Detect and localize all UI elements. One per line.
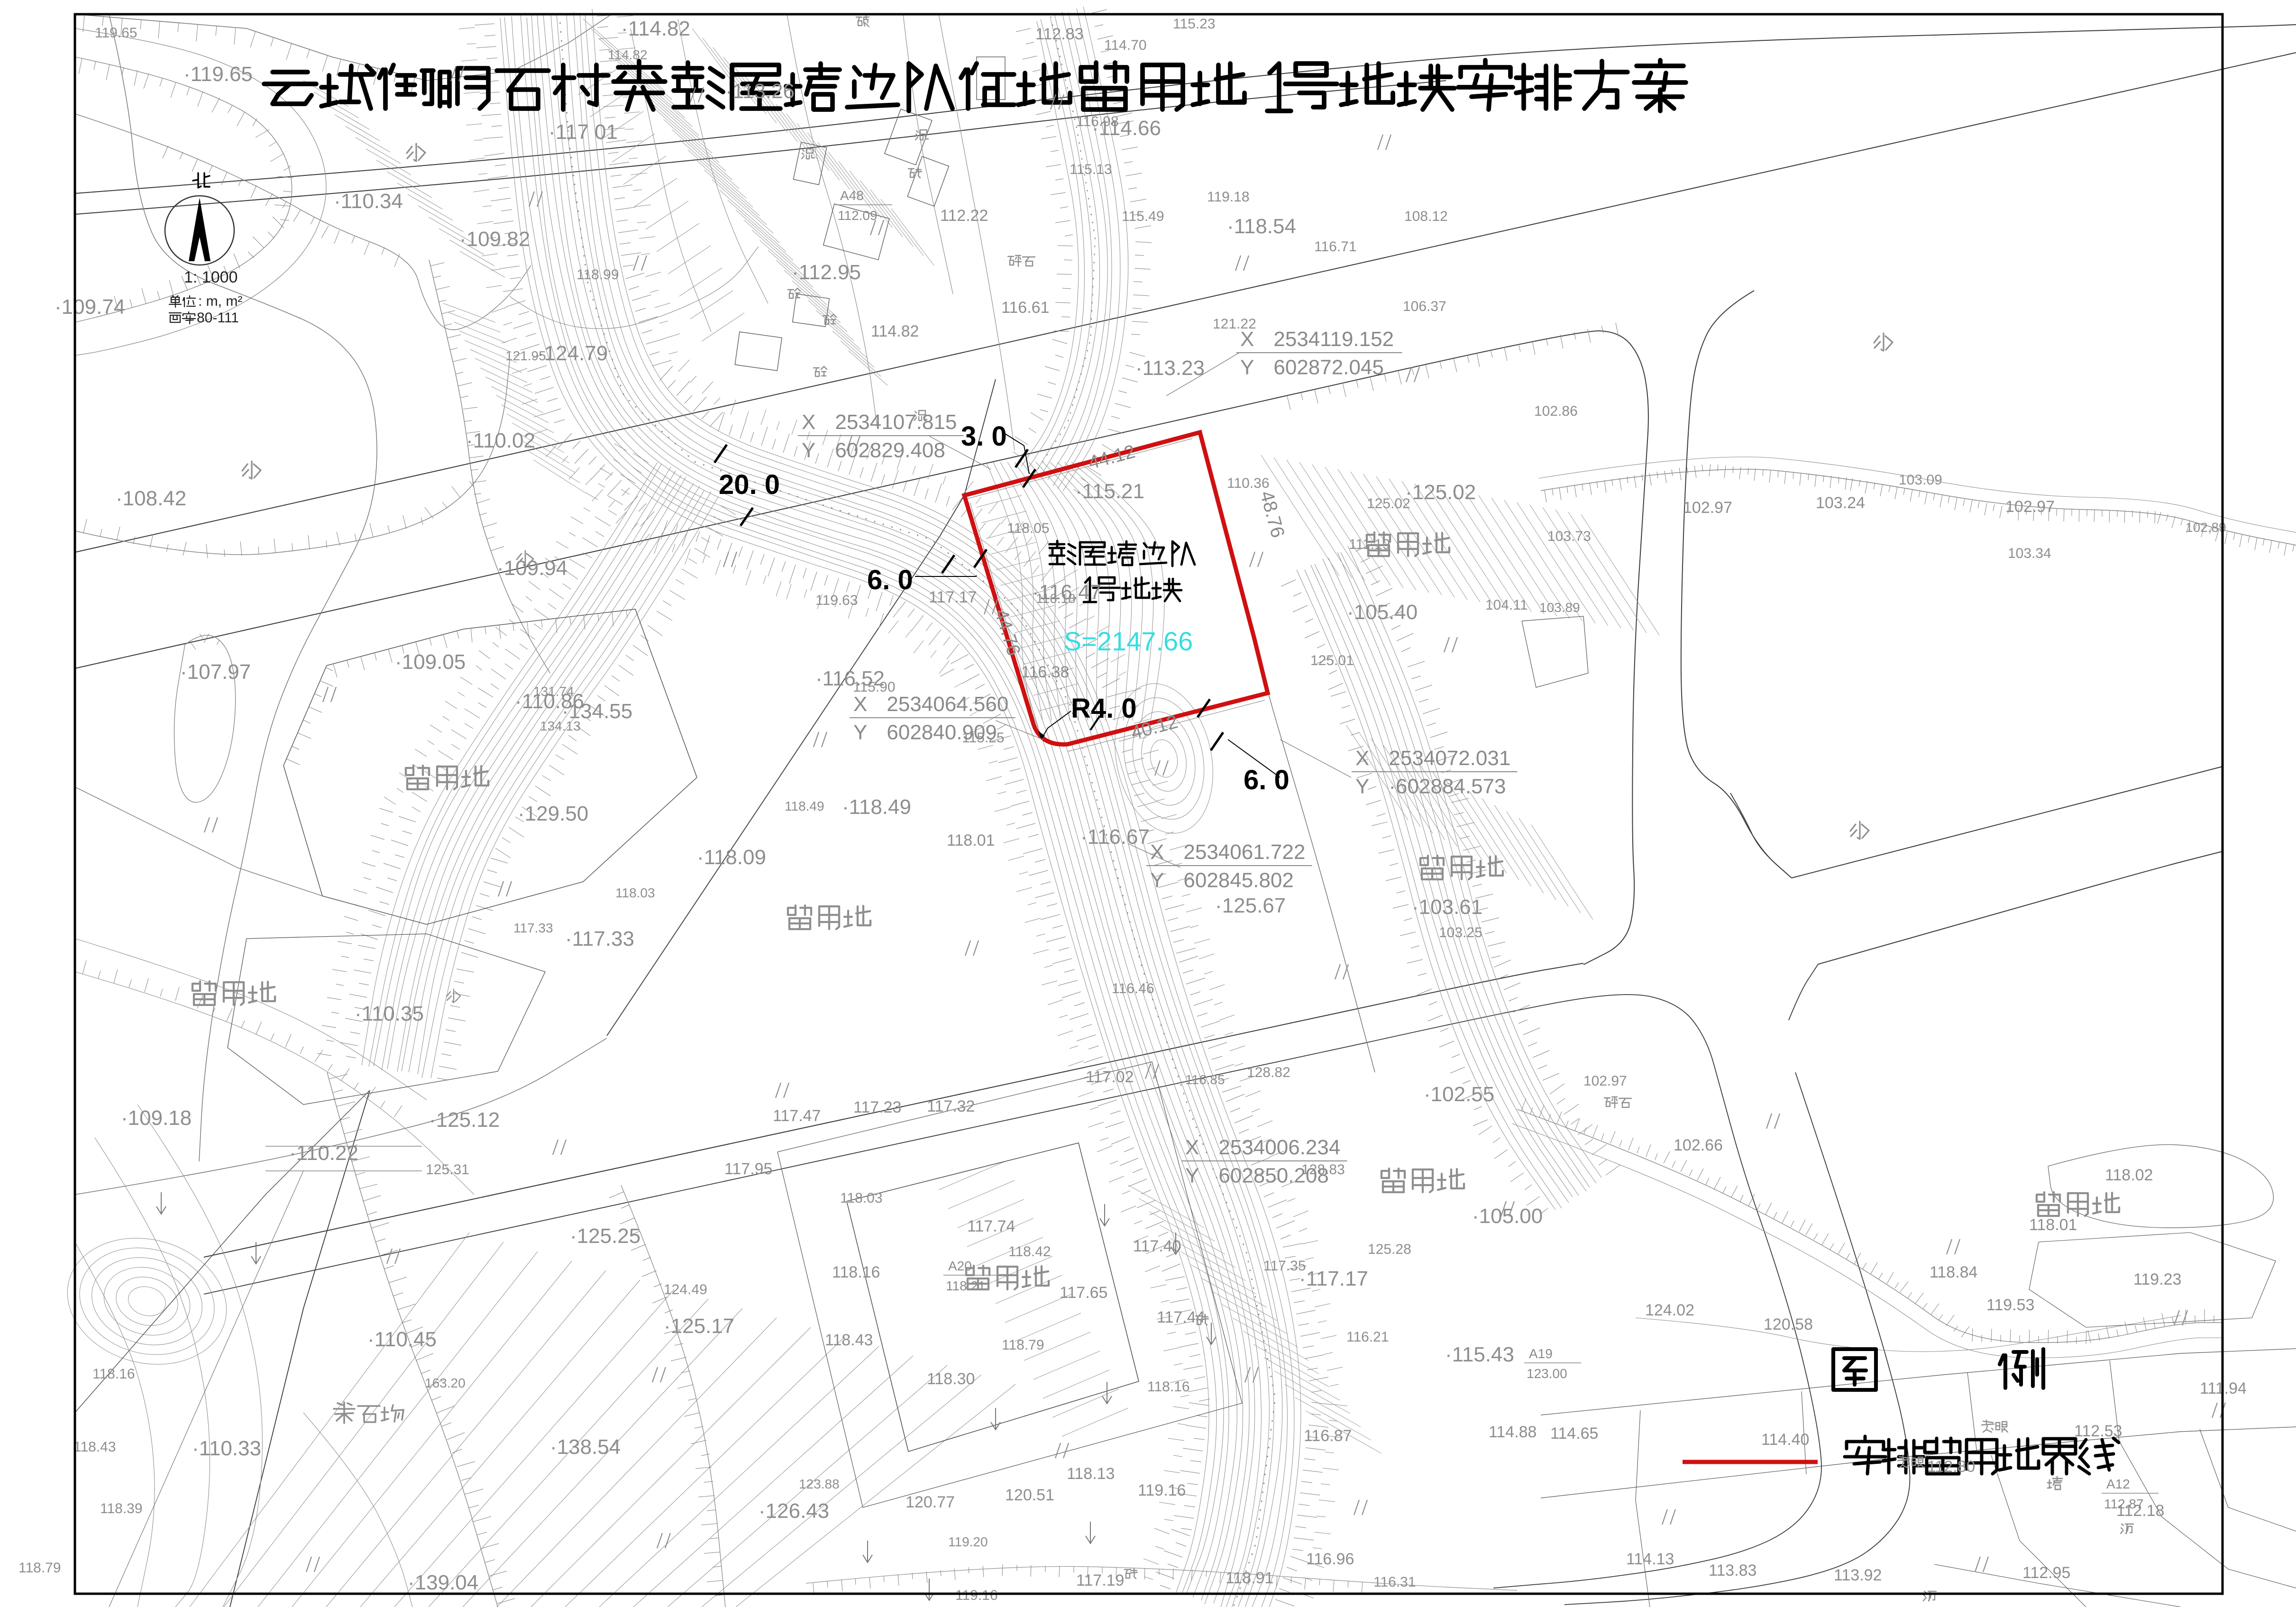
- svg-text:118.84: 118.84: [1930, 1263, 1977, 1281]
- svg-text:1: 1000: 1: 1000: [184, 268, 238, 286]
- svg-text:602872.045: 602872.045: [1273, 356, 1383, 379]
- svg-text:118.79: 118.79: [18, 1560, 61, 1576]
- svg-text:116.18: 116.18: [1036, 591, 1076, 606]
- svg-text:113.92: 113.92: [1834, 1566, 1882, 1584]
- svg-text:·110.35: ·110.35: [355, 1002, 424, 1025]
- svg-text:2534107.815: 2534107.815: [835, 411, 957, 434]
- svg-text:·602884.573: ·602884.573: [1389, 775, 1506, 798]
- svg-text:·116.67: ·116.67: [1080, 825, 1150, 849]
- svg-text:163.20: 163.20: [425, 1376, 466, 1390]
- svg-text:X: X: [1150, 840, 1164, 864]
- svg-text:A48: A48: [840, 188, 864, 203]
- svg-text:·115.21: ·115.21: [1075, 480, 1144, 503]
- svg-text:2534061.722: 2534061.722: [1183, 840, 1305, 864]
- svg-text:102.86: 102.86: [1534, 403, 1578, 419]
- svg-text:115.23: 115.23: [1173, 16, 1216, 32]
- svg-text:118.03: 118.03: [840, 1190, 883, 1206]
- svg-text:116.21: 116.21: [1346, 1329, 1389, 1345]
- svg-text:104.11: 104.11: [1485, 597, 1528, 613]
- svg-text:102.97: 102.97: [2005, 498, 2055, 516]
- svg-text:·125.12: ·125.12: [429, 1108, 500, 1132]
- svg-text:116.87: 116.87: [1304, 1427, 1352, 1445]
- svg-text:Y: Y: [1355, 775, 1369, 798]
- svg-text:116.61: 116.61: [1001, 299, 1049, 317]
- svg-text:: m, m²: : m, m²: [198, 293, 242, 309]
- svg-text:102.97: 102.97: [1683, 499, 1732, 517]
- svg-text:117.40: 117.40: [1133, 1237, 1181, 1255]
- svg-text:117.32: 117.32: [927, 1097, 975, 1115]
- svg-text:·139.04: ·139.04: [408, 1571, 478, 1594]
- svg-text:120.77: 120.77: [906, 1493, 955, 1511]
- svg-text:·109.74: ·109.74: [55, 295, 125, 319]
- svg-text:·118.54: ·118.54: [1227, 215, 1296, 238]
- svg-text:X: X: [1185, 1136, 1199, 1159]
- svg-text:·110.33: ·110.33: [192, 1437, 261, 1460]
- svg-text:80-111: 80-111: [197, 310, 239, 326]
- svg-text:Y: Y: [1185, 1164, 1199, 1187]
- svg-text:117.47: 117.47: [773, 1107, 821, 1125]
- svg-text:·125.02: ·125.02: [1405, 481, 1476, 504]
- svg-text:·109.82: ·109.82: [459, 228, 530, 251]
- svg-text:6. 0: 6. 0: [867, 565, 913, 595]
- svg-text:·102.55: ·102.55: [1424, 1083, 1494, 1106]
- svg-text:128.83: 128.83: [1301, 1162, 1345, 1178]
- svg-text:X: X: [1355, 747, 1369, 770]
- svg-text:·105.40: ·105.40: [1347, 601, 1418, 624]
- svg-text:Y: Y: [853, 721, 867, 744]
- svg-text:131.74: 131.74: [533, 684, 574, 699]
- svg-text:119.20: 119.20: [948, 1534, 988, 1549]
- svg-text:116.85: 116.85: [1185, 1072, 1225, 1087]
- svg-text:X: X: [802, 411, 815, 434]
- svg-text:121.22: 121.22: [1213, 316, 1256, 332]
- svg-text:103.89: 103.89: [1539, 600, 1580, 615]
- svg-text:119.65: 119.65: [95, 25, 137, 41]
- svg-text:112.80: 112.80: [1927, 1458, 1975, 1476]
- svg-text:102.66: 102.66: [1674, 1136, 1723, 1154]
- svg-text:115.13: 115.13: [1070, 162, 1112, 177]
- svg-text:112.95: 112.95: [2022, 1564, 2070, 1582]
- svg-text:·108.42: ·108.42: [116, 487, 186, 510]
- svg-text:125.31: 125.31: [426, 1162, 469, 1178]
- svg-text:114.82: 114.82: [608, 47, 648, 62]
- svg-text:Y: Y: [802, 438, 815, 462]
- svg-text:125.02: 125.02: [1367, 496, 1410, 511]
- svg-text:6. 0: 6. 0: [1244, 765, 1290, 795]
- svg-text:119.23: 119.23: [2133, 1270, 2181, 1288]
- svg-text:103.25: 103.25: [1439, 925, 1482, 940]
- svg-text:119.53: 119.53: [1986, 1296, 2034, 1314]
- svg-text:R4. 0: R4. 0: [1071, 693, 1137, 724]
- svg-text:·114.82: ·114.82: [621, 17, 690, 40]
- svg-text:119.16: 119.16: [1138, 1481, 1186, 1499]
- svg-text:120.58: 120.58: [1764, 1315, 1813, 1333]
- svg-text:117.02: 117.02: [1086, 1068, 1134, 1086]
- svg-text:102.89: 102.89: [2186, 520, 2226, 535]
- svg-text:102.97: 102.97: [1583, 1073, 1627, 1089]
- svg-text:114.82: 114.82: [871, 322, 919, 340]
- svg-text:·125.25: ·125.25: [570, 1224, 640, 1248]
- svg-text:118.01: 118.01: [2029, 1216, 2077, 1234]
- svg-text:123.88: 123.88: [799, 1477, 840, 1491]
- svg-text:·113.23: ·113.23: [1135, 356, 1205, 380]
- svg-text:110.36: 110.36: [1227, 475, 1270, 491]
- svg-text:·129.50: ·129.50: [518, 802, 588, 825]
- svg-text:120.51: 120.51: [1005, 1486, 1054, 1504]
- svg-text:112.83: 112.83: [1035, 25, 1083, 43]
- svg-text:112.53: 112.53: [2074, 1422, 2122, 1440]
- svg-text:118.43: 118.43: [825, 1331, 873, 1349]
- svg-text:118.43: 118.43: [73, 1439, 116, 1455]
- svg-text:·110.34: ·110.34: [334, 190, 403, 213]
- svg-text:103.73: 103.73: [1547, 529, 1591, 544]
- svg-text:A19: A19: [1529, 1346, 1553, 1361]
- svg-text:S=2147.66: S=2147.66: [1064, 626, 1193, 656]
- svg-text:·109.05: ·109.05: [395, 650, 466, 674]
- svg-text:114.88: 114.88: [1489, 1423, 1537, 1441]
- svg-text:116.31: 116.31: [1373, 1574, 1416, 1590]
- svg-text:121.95: 121.95: [505, 348, 546, 363]
- svg-text:115.25: 115.25: [962, 730, 1005, 746]
- svg-text:117.74: 117.74: [967, 1217, 1015, 1235]
- svg-text:112.22: 112.22: [940, 207, 988, 225]
- svg-text:·117.33: ·117.33: [565, 927, 634, 950]
- svg-text:·113.26: ·113.26: [725, 80, 795, 103]
- svg-text:118.39: 118.39: [100, 1501, 143, 1516]
- svg-text:103.34: 103.34: [2008, 546, 2051, 561]
- svg-text:118.16: 118.16: [92, 1366, 135, 1382]
- svg-text:118.02: 118.02: [2105, 1166, 2153, 1184]
- svg-text:118.91: 118.91: [1226, 1569, 1273, 1587]
- svg-text:117.23: 117.23: [853, 1098, 901, 1116]
- svg-text:114.40: 114.40: [1761, 1431, 1809, 1449]
- svg-text:118.49: 118.49: [785, 799, 824, 813]
- svg-text:A12: A12: [2106, 1477, 2130, 1491]
- svg-text:134.13: 134.13: [540, 719, 581, 733]
- svg-text:·126.43: ·126.43: [759, 1499, 829, 1523]
- svg-text:117.33: 117.33: [513, 921, 553, 935]
- svg-text:118.03: 118.03: [615, 886, 655, 900]
- svg-text:·124.79: ·124.79: [537, 342, 608, 365]
- svg-text:3. 0: 3. 0: [961, 421, 1007, 452]
- svg-text:118.21: 118.21: [946, 1278, 986, 1293]
- svg-text:115.90: 115.90: [853, 679, 896, 695]
- svg-text:114.70: 114.70: [1104, 37, 1147, 53]
- svg-text:116.38: 116.38: [1021, 663, 1069, 681]
- svg-text:119.63: 119.63: [815, 593, 858, 608]
- svg-text:112.87: 112.87: [2104, 1497, 2144, 1511]
- svg-text:118.30: 118.30: [927, 1370, 975, 1388]
- svg-text:·110.02: ·110.02: [466, 429, 535, 452]
- svg-text:118.42: 118.42: [1008, 1244, 1051, 1260]
- svg-text:115.49: 115.49: [1122, 209, 1164, 224]
- svg-text:118.16: 118.16: [1147, 1379, 1190, 1395]
- svg-text:117.65: 117.65: [1060, 1284, 1107, 1302]
- svg-text:103.09: 103.09: [1899, 472, 1942, 488]
- svg-text:117.19: 117.19: [1076, 1571, 1124, 1589]
- svg-text:125.28: 125.28: [1368, 1242, 1411, 1257]
- svg-text:·109.18: ·109.18: [121, 1106, 192, 1130]
- svg-text:·107.97: ·107.97: [180, 660, 251, 684]
- svg-text:114.65: 114.65: [1550, 1424, 1598, 1443]
- svg-text:117.17: 117.17: [929, 588, 977, 606]
- svg-text:118.79: 118.79: [1002, 1337, 1044, 1353]
- svg-text:A20: A20: [948, 1259, 972, 1273]
- svg-text:106.37: 106.37: [1403, 299, 1446, 314]
- svg-text:108.12: 108.12: [1404, 209, 1448, 224]
- svg-text:·118.49: ·118.49: [842, 795, 911, 819]
- svg-text:·115.43: ·115.43: [1445, 1343, 1514, 1366]
- svg-text:123.00: 123.00: [1527, 1366, 1567, 1381]
- svg-text:·125.17: ·125.17: [664, 1315, 734, 1338]
- svg-text:128.82: 128.82: [1247, 1065, 1290, 1080]
- svg-text:·103.61: ·103.61: [1412, 895, 1482, 919]
- svg-text:·117.17: ·117.17: [1299, 1267, 1368, 1290]
- svg-text:118.16: 118.16: [832, 1263, 880, 1281]
- svg-text:2534006.234: 2534006.234: [1218, 1136, 1340, 1159]
- svg-text:116.98: 116.98: [1076, 114, 1119, 129]
- svg-text:X: X: [853, 693, 867, 716]
- svg-text:20. 0: 20. 0: [719, 469, 780, 500]
- svg-text:·119.65: ·119.65: [183, 63, 253, 86]
- svg-text:118.99: 118.99: [576, 267, 619, 283]
- svg-text:·125.67: ·125.67: [1215, 894, 1286, 917]
- svg-text:117.95: 117.95: [724, 1160, 772, 1178]
- svg-text:·110.22: ·110.22: [289, 1141, 358, 1165]
- svg-text:113.83: 113.83: [1709, 1561, 1756, 1580]
- svg-text:124.49: 124.49: [664, 1282, 707, 1297]
- svg-text:116.46: 116.46: [1112, 981, 1154, 996]
- svg-text:·117 01: ·117 01: [549, 120, 618, 144]
- svg-text:·112.95: ·112.95: [792, 261, 861, 284]
- svg-text:118.05: 118.05: [1007, 520, 1050, 536]
- svg-text:118.01: 118.01: [947, 831, 995, 849]
- svg-text:116.71: 116.71: [1314, 239, 1357, 255]
- svg-text:602829.408: 602829.408: [835, 438, 945, 462]
- svg-text:2534072.031: 2534072.031: [1389, 747, 1510, 770]
- svg-text:118.13: 118.13: [1067, 1465, 1115, 1483]
- svg-text:125.01: 125.01: [1310, 653, 1354, 668]
- svg-text:·138.54: ·138.54: [550, 1435, 621, 1459]
- svg-text:119.16: 119.16: [955, 1588, 998, 1603]
- svg-text:112.09: 112.09: [838, 208, 878, 223]
- svg-text:·110.45: ·110.45: [367, 1328, 437, 1351]
- svg-text:124.02: 124.02: [1645, 1301, 1694, 1319]
- svg-text:·118.09: ·118.09: [697, 846, 766, 869]
- svg-text:103.24: 103.24: [1816, 494, 1865, 512]
- svg-text:Y: Y: [1150, 868, 1164, 892]
- svg-text:·105.00: ·105.00: [1472, 1205, 1543, 1228]
- svg-text:2534119.152: 2534119.152: [1273, 328, 1394, 351]
- svg-text:602845.802: 602845.802: [1183, 868, 1293, 892]
- svg-text:114.13: 114.13: [1626, 1550, 1674, 1568]
- svg-text:2534064.560: 2534064.560: [887, 693, 1008, 716]
- svg-text:116.96: 116.96: [1306, 1550, 1354, 1568]
- svg-text:Y: Y: [1240, 356, 1254, 379]
- svg-text:119.18: 119.18: [1207, 189, 1250, 205]
